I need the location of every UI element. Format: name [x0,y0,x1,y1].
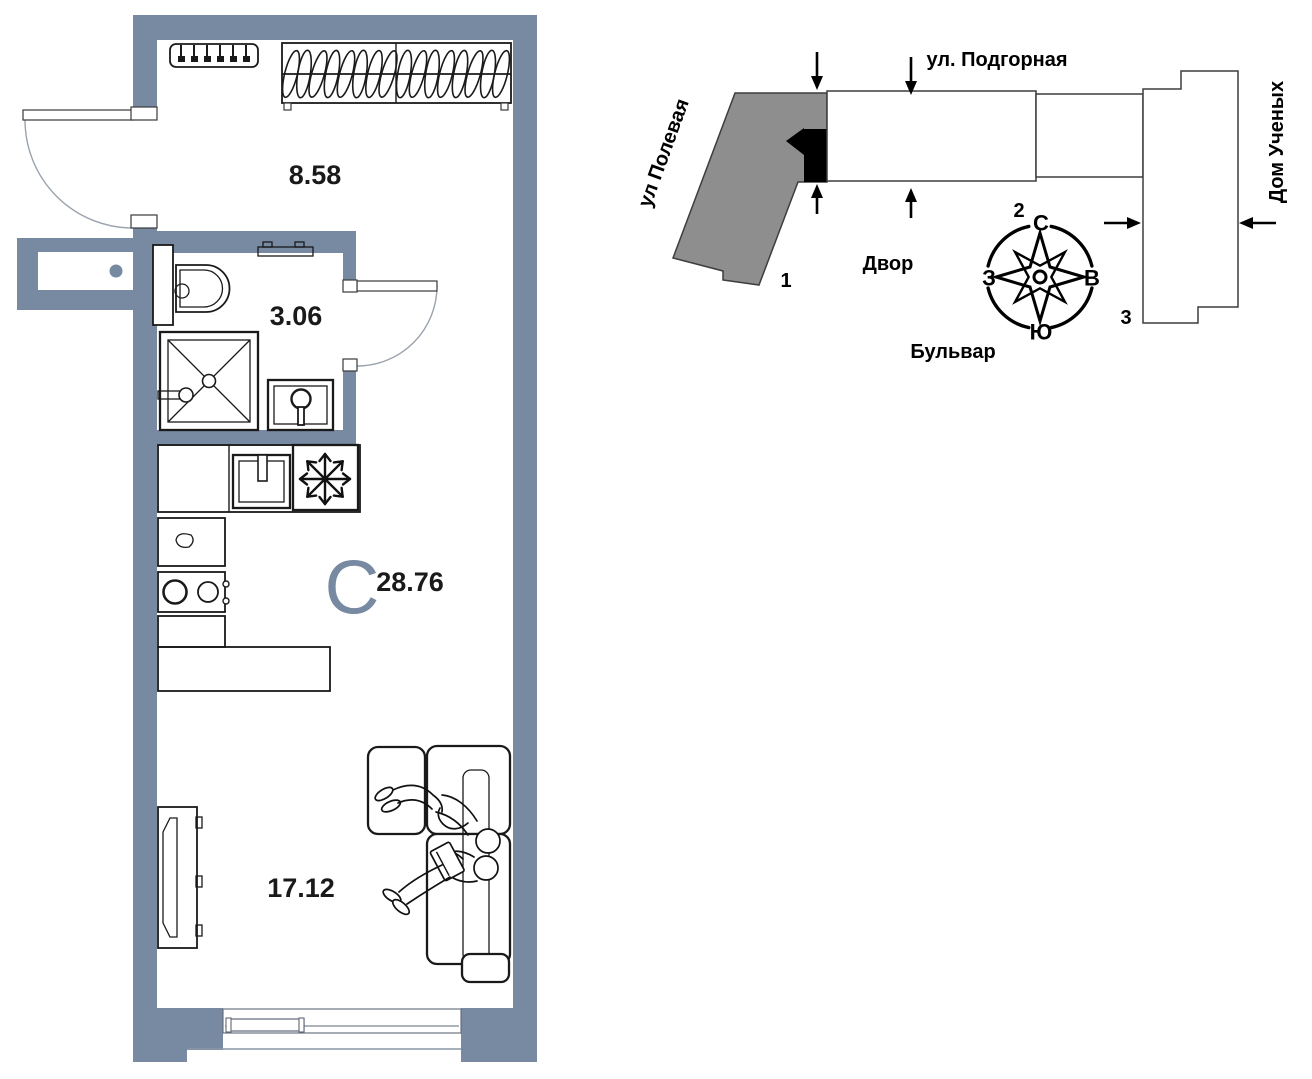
plan-canvas: 8.58 3.06 17.12 С 28.76 [0,0,1312,1079]
building-2-block-a [827,91,1036,181]
apartment-plan-page: 8.58 3.06 17.12 С 28.76 [0,0,1312,1079]
building-3-number: 3 [1120,307,1131,329]
stove [158,572,229,612]
entry-door-jamb-bottom [131,215,157,228]
site-plan: С В Ю З ул. Подгорная ул Полевая Дом Уче… [634,49,1288,363]
snowflake-icon [300,454,350,504]
compass-south: Ю [1030,320,1053,345]
shaft-dot [110,265,123,278]
bathroom-area-label: 3.06 [270,301,323,331]
boulevard-label: Бульвар [910,341,995,363]
window-sash [227,1019,304,1031]
hook-rail [170,44,258,67]
bathroom-door-jamb-bottom [343,359,357,371]
wall-bathroom-bottom [133,430,356,446]
bathroom-door [343,280,437,371]
wall-bathroom-right-upper [343,253,356,280]
entry-door [23,107,157,228]
wall-top [133,15,537,40]
building-3 [1143,71,1238,323]
courtyard-label: Двор [863,253,914,275]
entry-door-jamb-top [131,107,157,120]
building-2-number: 2 [1013,200,1024,222]
total-area-label: 28.76 [376,567,444,597]
compass-east: В [1084,266,1100,291]
faucet [258,455,267,481]
bathroom-door-jamb-top [343,280,357,292]
living-room [158,746,510,982]
fridge [293,445,358,510]
wall-bottom-left-block [133,1008,223,1050]
shower [158,332,258,430]
washbasin [268,380,333,430]
wall-bottom-right-block [461,1008,537,1062]
cabinet-handle [176,534,193,548]
building-2-block-b [1036,94,1143,177]
compass-west: З [982,266,996,291]
landmark-right-label: Дом Ученых [1266,81,1288,203]
floor-plan: 8.58 3.06 17.12 С 28.76 [17,15,537,1062]
entry-door-leaf [23,110,133,120]
window [187,1009,461,1049]
living-area-label: 17.12 [267,873,335,903]
compass-north: С [1033,211,1049,236]
tv-stand [158,807,202,948]
kitchen-cabinet-2 [158,616,225,647]
shower-mixer [179,388,193,402]
bathroom-door-leaf [357,281,437,291]
wardrobe [279,43,513,110]
wall-bathroom-right-lower [343,370,356,430]
building-1-highlighted [673,93,827,285]
kitchen-sink [233,455,290,508]
hall-area-label: 8.58 [289,160,342,190]
kitchen-table [158,647,330,691]
apartment-type-letter: С [325,546,380,631]
kitchen-cabinet [158,518,225,566]
bathroom-door-swing-arc [357,286,437,366]
hall [170,43,513,110]
entry-door-swing-arc [25,120,133,228]
tv-icon [163,818,177,937]
wall-left-top [133,15,157,110]
toilet [153,245,229,325]
street-top-label: ул. Подгорная [926,49,1067,71]
wall-right [513,40,537,1008]
wall-left-main [133,222,157,1008]
wall-bottom-left-step [133,1050,187,1062]
street-left-label: ул Полевая [634,96,694,210]
bathroom [153,242,437,430]
building-1-number: 1 [780,270,791,292]
compass-rose: С В Ю З [982,211,1100,345]
toilet-cistern [153,245,173,325]
